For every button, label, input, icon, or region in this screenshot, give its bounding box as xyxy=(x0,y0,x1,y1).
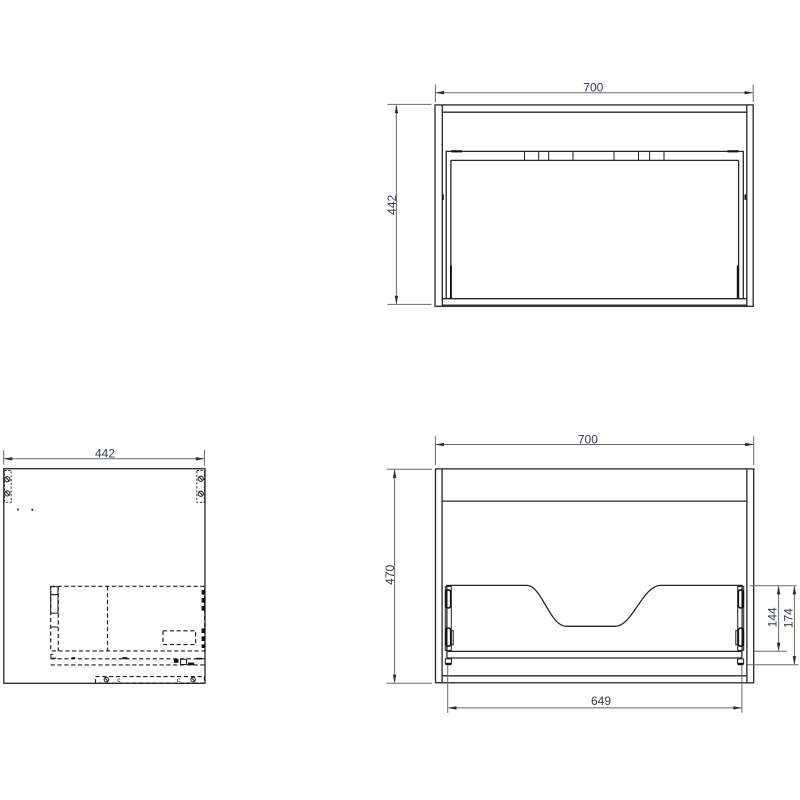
svg-text:144: 144 xyxy=(766,607,780,627)
svg-text:442: 442 xyxy=(385,194,399,214)
svg-text:470: 470 xyxy=(383,564,397,584)
svg-text:700: 700 xyxy=(578,433,598,447)
svg-text:174: 174 xyxy=(782,608,796,628)
svg-text:649: 649 xyxy=(591,694,611,708)
svg-text:442: 442 xyxy=(95,447,115,461)
svg-text:700: 700 xyxy=(583,81,603,95)
